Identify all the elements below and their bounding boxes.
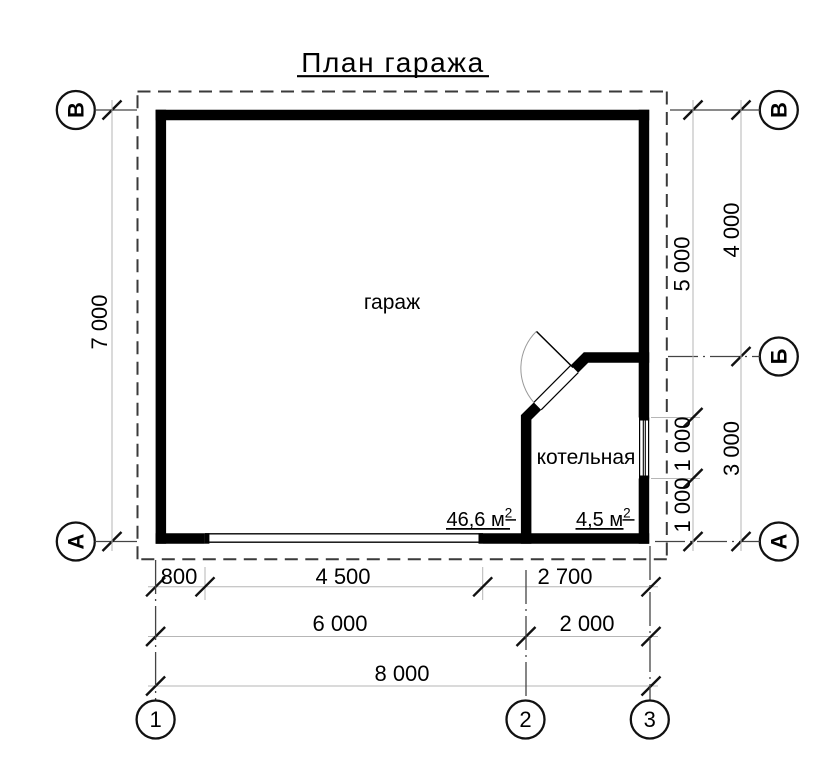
svg-text:2 000: 2 000	[559, 611, 614, 636]
svg-text:2: 2	[519, 707, 531, 732]
svg-text:В: В	[63, 102, 88, 118]
svg-text:1: 1	[149, 707, 161, 732]
svg-text:4,5 м2: 4,5 м2	[576, 506, 631, 532]
svg-text:46,6 м2: 46,6 м2	[447, 506, 513, 532]
svg-text:3: 3	[644, 707, 656, 732]
svg-text:План гаража: План гаража	[301, 47, 485, 78]
svg-text:А: А	[63, 533, 88, 549]
svg-text:7 000: 7 000	[87, 294, 112, 349]
svg-text:1 000: 1 000	[670, 477, 695, 532]
svg-text:5 000: 5 000	[670, 236, 695, 291]
svg-text:В: В	[766, 102, 791, 118]
svg-text:3 000: 3 000	[719, 421, 744, 476]
svg-text:2 700: 2 700	[537, 564, 592, 589]
svg-text:4 000: 4 000	[719, 202, 744, 257]
svg-text:1 000: 1 000	[670, 416, 695, 471]
svg-text:Б: Б	[766, 348, 791, 364]
svg-text:котельная: котельная	[537, 446, 636, 469]
svg-text:6 000: 6 000	[312, 611, 367, 636]
svg-text:4 500: 4 500	[315, 564, 370, 589]
svg-text:800: 800	[161, 564, 198, 589]
svg-text:8 000: 8 000	[374, 661, 429, 686]
svg-text:А: А	[766, 533, 791, 549]
svg-text:гараж: гараж	[364, 291, 420, 314]
